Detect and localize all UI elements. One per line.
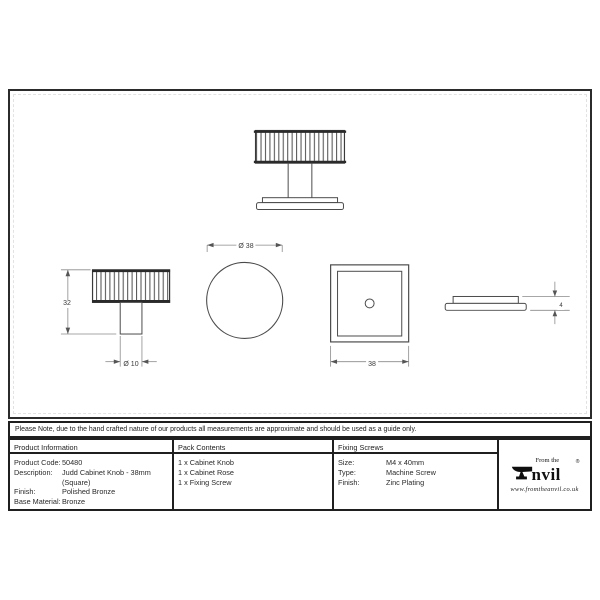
brand-website: www.fromtheanvil.co.uk — [510, 486, 578, 493]
screw-finish-label: Finish: — [338, 478, 386, 488]
measurement-note-text: Please Note, due to the hand crafted nat… — [15, 426, 416, 433]
spec-table: Product Information Product Code: 50480 … — [8, 438, 592, 511]
table-row: Product Code: 50480 — [14, 458, 170, 468]
dim-stem-diameter: Ø 10 — [121, 361, 140, 369]
rose-side-view — [445, 282, 569, 324]
finish-label: Finish: — [14, 487, 62, 497]
dim-knob-diameter: Ø 38 — [236, 243, 255, 251]
assembled-view — [255, 131, 345, 210]
screw-finish-value: Zinc Plating — [386, 478, 482, 488]
fixing-screws-header: Fixing Screws — [334, 440, 497, 454]
brand-column: From the nvil ® www.fromtheanvil.co.uk — [499, 440, 590, 509]
fixing-screws-body: Size: M4 x 40mm Type: Machine Screw Fini… — [334, 454, 497, 509]
brand-logo: From the nvil ® www.fromtheanvil.co.uk — [510, 456, 578, 493]
screw-size-label: Size: — [338, 458, 386, 468]
table-row: Base Material: Bronze — [14, 497, 170, 507]
product-code-value: 50480 — [62, 458, 158, 468]
finish-value: Polished Bronze — [62, 487, 158, 497]
list-item: 1 x Cabinet Knob — [178, 458, 330, 468]
product-information-body: Product Code: 50480 Description: Judd Ca… — [10, 454, 172, 509]
table-row: Type: Machine Screw — [338, 468, 495, 478]
side-view — [61, 270, 170, 367]
spec-sheet: 32 Ø 10 Ø 38 38 4 Please Note, due to th… — [0, 0, 600, 600]
rose-front-view — [331, 265, 409, 367]
list-item: 1 x Fixing Screw — [178, 478, 330, 488]
measurement-note-bar: Please Note, due to the hand crafted nat… — [8, 421, 592, 438]
product-information-column: Product Information Product Code: 50480 … — [10, 440, 174, 509]
brand-wordmark: nvil — [531, 465, 560, 485]
registered-mark-icon: ® — [576, 459, 580, 465]
top-view — [207, 243, 283, 339]
anvil-icon — [511, 465, 533, 482]
dim-rose-thickness: 4 — [557, 302, 564, 310]
base-material-value: Bronze — [62, 497, 158, 507]
table-row: Size: M4 x 40mm — [338, 458, 495, 468]
pack-contents-body: 1 x Cabinet Knob 1 x Cabinet Rose 1 x Fi… — [174, 454, 332, 509]
pack-contents-header: Pack Contents — [174, 440, 332, 454]
brand-lockup: From the nvil ® — [511, 456, 577, 483]
description-label: Description: — [14, 468, 62, 488]
description-value: Judd Cabinet Knob - 38mm (Square) — [62, 468, 158, 488]
screw-type-value: Machine Screw — [386, 468, 482, 478]
base-material-label: Base Material: — [14, 497, 62, 507]
list-item: 1 x Cabinet Rose — [178, 468, 330, 478]
technical-drawing-area: 32 Ø 10 Ø 38 38 4 — [8, 89, 592, 419]
dim-rose-width: 38 — [366, 361, 378, 369]
brand-tagline: From the — [535, 457, 559, 464]
table-row: Finish: Polished Bronze — [14, 487, 170, 497]
knob-drawing-svg — [10, 91, 590, 417]
screw-size-value: M4 x 40mm — [386, 458, 482, 468]
pack-contents-column: Pack Contents 1 x Cabinet Knob 1 x Cabin… — [174, 440, 334, 509]
dim-knob-height: 32 — [61, 300, 73, 308]
product-code-label: Product Code: — [14, 458, 62, 468]
table-row: Description: Judd Cabinet Knob - 38mm (S… — [14, 468, 170, 488]
table-row: Finish: Zinc Plating — [338, 478, 495, 488]
fixing-screws-column: Fixing Screws Size: M4 x 40mm Type: Mach… — [334, 440, 499, 509]
screw-type-label: Type: — [338, 468, 386, 478]
product-information-header: Product Information — [10, 440, 172, 454]
